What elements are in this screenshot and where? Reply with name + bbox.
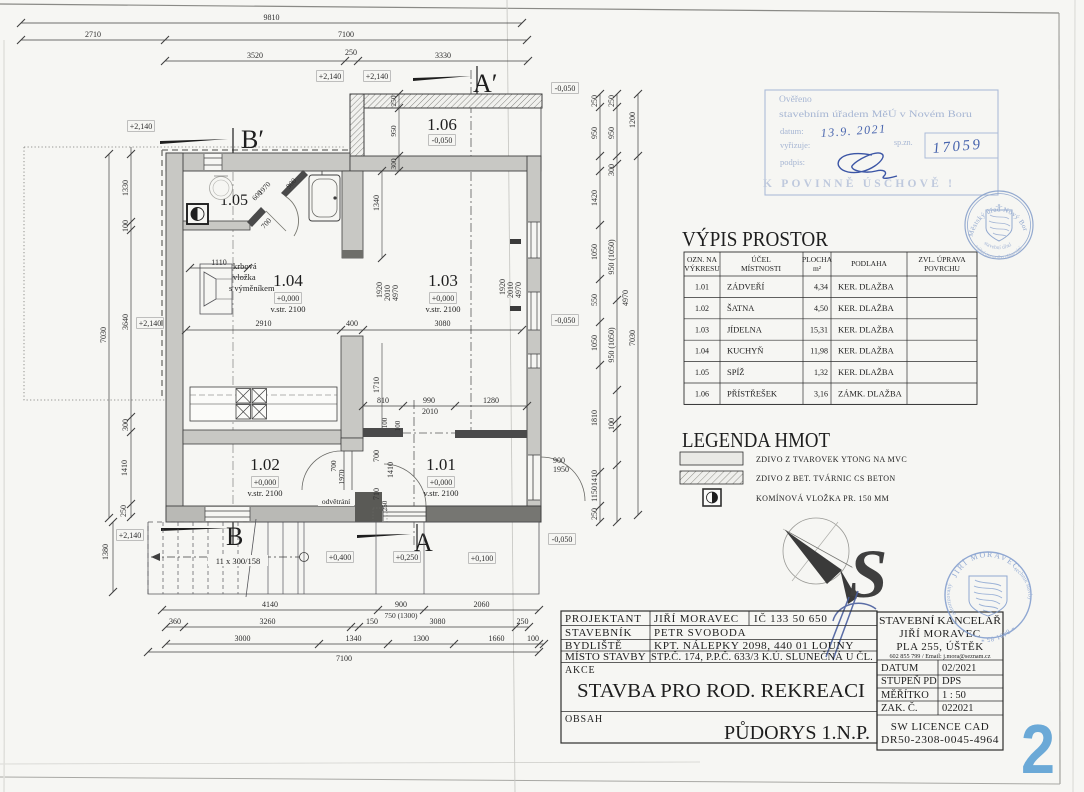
- svg-text:1300: 1300: [413, 634, 429, 643]
- svg-text:4,34: 4,34: [814, 283, 828, 292]
- svg-text:PLA 255, ÚŠTĚK: PLA 255, ÚŠTĚK: [896, 641, 983, 653]
- svg-text:750 (1300): 750 (1300): [384, 611, 418, 620]
- svg-text:1280: 1280: [483, 396, 499, 405]
- svg-text:POVRCHU: POVRCHU: [924, 264, 960, 273]
- svg-text:950 (1050): 950 (1050): [607, 239, 616, 275]
- svg-text:3080: 3080: [435, 319, 451, 328]
- svg-text:3260: 3260: [260, 617, 276, 626]
- svg-text:3000: 3000: [235, 634, 251, 643]
- svg-text:1050: 1050: [590, 244, 599, 260]
- svg-text:STP.Č. 174, P.P.Č. 633/3 K.Ú.: STP.Č. 174, P.P.Č. 633/3 K.Ú. SLUNEČNÁ U…: [651, 651, 873, 663]
- svg-text:KER. DLAŽBA: KER. DLAŽBA: [838, 346, 895, 356]
- svg-text:1.04: 1.04: [695, 347, 709, 356]
- svg-text:MÍSTO STAVBY: MÍSTO STAVBY: [565, 651, 646, 663]
- svg-text:KUCHYŇ: KUCHYŇ: [727, 346, 763, 356]
- svg-text:1.01: 1.01: [695, 283, 709, 292]
- svg-text:602 855 799 / Email: j.mora@se: 602 855 799 / Email: j.mora@seznam.cz: [889, 653, 990, 660]
- svg-text:KOMÍNOVÁ VLOŽKA PR. 150 MM: KOMÍNOVÁ VLOŽKA PR. 150 MM: [756, 493, 889, 503]
- svg-text:1.01: 1.01: [426, 455, 456, 474]
- svg-text:2910: 2910: [256, 319, 272, 328]
- svg-text:1050: 1050: [590, 335, 599, 351]
- svg-text:3330: 3330: [435, 51, 451, 60]
- svg-text:022021: 022021: [942, 703, 974, 714]
- svg-text:JIŘÍ MORAVEC: JIŘÍ MORAVEC: [654, 613, 739, 625]
- svg-text:+2,140: +2,140: [119, 531, 142, 540]
- svg-text:4970: 4970: [621, 290, 630, 306]
- svg-text:+0,400: +0,400: [329, 553, 352, 562]
- svg-text:15,31: 15,31: [810, 325, 828, 334]
- svg-text:PODLAHA: PODLAHA: [851, 259, 887, 268]
- svg-text:1.05: 1.05: [695, 368, 709, 377]
- svg-text:100: 100: [121, 220, 130, 232]
- svg-text:LEGENDA HMOT: LEGENDA HMOT: [682, 428, 830, 452]
- svg-text:PETR SVOBODA: PETR SVOBODA: [654, 627, 746, 639]
- svg-text:ÚČEL: ÚČEL: [751, 254, 771, 264]
- svg-text:1 : 50: 1 : 50: [942, 690, 966, 701]
- svg-text:4970: 4970: [391, 285, 400, 301]
- svg-text:+2,140: +2,140: [366, 72, 389, 81]
- svg-text:1.03: 1.03: [428, 271, 458, 290]
- svg-text:v.str. 2100: v.str. 2100: [247, 488, 282, 498]
- svg-text:950: 950: [389, 125, 398, 137]
- svg-text:OZN. NA: OZN. NA: [687, 255, 718, 264]
- svg-text:s výměníkem: s výměníkem: [229, 283, 275, 293]
- svg-text:100: 100: [394, 420, 402, 431]
- svg-text:v.str. 2100: v.str. 2100: [425, 304, 460, 314]
- svg-text:B′: B′: [241, 125, 264, 154]
- svg-text:1.02: 1.02: [695, 304, 709, 313]
- svg-text:3520: 3520: [247, 51, 263, 60]
- svg-text:PLOCHA: PLOCHA: [802, 255, 833, 264]
- svg-text:VÝKRESU: VÝKRESU: [684, 263, 720, 273]
- svg-text:B: B: [226, 522, 243, 551]
- svg-text:1.02: 1.02: [250, 455, 280, 474]
- svg-text:250: 250: [345, 48, 357, 57]
- svg-text:100: 100: [527, 634, 539, 643]
- svg-text:K POVINNĚ ÚSCHOVĚ !: K POVINNĚ ÚSCHOVĚ !: [763, 176, 955, 190]
- svg-text:810: 810: [377, 396, 389, 405]
- svg-text:950 (1050): 950 (1050): [607, 327, 616, 363]
- svg-text:1380: 1380: [101, 544, 110, 560]
- svg-text:1330: 1330: [121, 180, 130, 196]
- svg-text:ŠATNA: ŠATNA: [727, 303, 755, 313]
- svg-text:+0,000: +0,000: [254, 478, 277, 487]
- svg-text:ZÁMK. DLAŽBA: ZÁMK. DLAŽBA: [838, 389, 903, 399]
- svg-text:250: 250: [607, 95, 616, 107]
- svg-text:1340: 1340: [346, 634, 362, 643]
- svg-text:m²: m²: [813, 264, 822, 273]
- svg-text:v.str. 2100: v.str. 2100: [423, 488, 458, 498]
- svg-text:1200: 1200: [628, 112, 637, 128]
- svg-text:1710: 1710: [372, 377, 381, 393]
- svg-text:ZDIVO Z BET. TVÁRNIC CS BETON: ZDIVO Z BET. TVÁRNIC CS BETON: [756, 473, 896, 483]
- svg-text:4,50: 4,50: [814, 304, 828, 313]
- svg-text:MÍSTNOSTI: MÍSTNOSTI: [741, 263, 782, 273]
- svg-text:MĚŘÍTKO: MĚŘÍTKO: [881, 689, 929, 701]
- svg-text:2710: 2710: [85, 30, 101, 39]
- svg-text:KER. DLAŽBA: KER. DLAŽBA: [838, 282, 895, 292]
- svg-text:700: 700: [372, 450, 381, 462]
- svg-text:3640: 3640: [121, 314, 130, 330]
- svg-text:1340: 1340: [372, 195, 381, 211]
- svg-text:+0,000: +0,000: [430, 478, 453, 487]
- svg-text:-0,050: -0,050: [555, 316, 576, 325]
- svg-text:1410: 1410: [590, 470, 599, 486]
- svg-text:SPÍŽ: SPÍŽ: [727, 367, 744, 377]
- svg-text:1950: 1950: [553, 465, 569, 474]
- svg-text:2: 2: [1021, 710, 1055, 788]
- svg-text:360: 360: [169, 617, 181, 626]
- svg-text:710: 710: [372, 488, 381, 500]
- svg-text:1.06: 1.06: [427, 115, 457, 134]
- svg-text:990: 990: [423, 396, 435, 405]
- svg-text:300: 300: [121, 419, 130, 431]
- svg-text:odvětrání: odvětrání: [322, 497, 350, 506]
- svg-text:900: 900: [395, 600, 407, 609]
- svg-text:STAVEBNÍ KANCELÁŘ: STAVEBNÍ KANCELÁŘ: [879, 615, 1002, 627]
- svg-text:2060: 2060: [474, 600, 490, 609]
- svg-text:ZVL. ÚPRAVA: ZVL. ÚPRAVA: [918, 254, 966, 264]
- svg-text:ZÁDVEŘÍ: ZÁDVEŘÍ: [727, 282, 764, 292]
- svg-text:AKCE: AKCE: [565, 665, 595, 676]
- svg-text:100: 100: [607, 418, 616, 430]
- svg-text:400: 400: [346, 319, 358, 328]
- svg-text:KER. DLAŽBA: KER. DLAŽBA: [838, 367, 895, 377]
- svg-text:STAVBA PRO ROD. REKREACI: STAVBA PRO ROD. REKREACI: [577, 680, 865, 702]
- svg-text:-0,050: -0,050: [552, 535, 573, 544]
- svg-text:ZAK. Č.: ZAK. Č.: [881, 702, 917, 714]
- svg-text:7100: 7100: [336, 654, 352, 663]
- svg-text:vyřizuje:: vyřizuje:: [780, 140, 810, 150]
- svg-text:550: 550: [590, 294, 599, 306]
- svg-text:1.03: 1.03: [695, 325, 709, 334]
- svg-text:7100: 7100: [338, 30, 354, 39]
- svg-text:1.06: 1.06: [695, 390, 709, 399]
- svg-text:250: 250: [381, 500, 389, 511]
- svg-text:4140: 4140: [262, 600, 278, 609]
- svg-text:900: 900: [553, 456, 565, 465]
- svg-text:250: 250: [590, 95, 599, 107]
- svg-text:1,32: 1,32: [814, 368, 828, 377]
- svg-text:JÍDELNA: JÍDELNA: [727, 324, 763, 334]
- svg-text:PROJEKTANT: PROJEKTANT: [565, 613, 642, 625]
- svg-text:1970: 1970: [337, 469, 346, 484]
- svg-text:VÝPIS PROSTOR: VÝPIS PROSTOR: [682, 227, 828, 251]
- svg-text:PŮDORYS 1.N.P.: PŮDORYS 1.N.P.: [724, 720, 870, 744]
- svg-text:datum:: datum:: [780, 126, 804, 136]
- svg-text:STUPEŇ PD: STUPEŇ PD: [881, 675, 937, 687]
- svg-text:9810: 9810: [264, 13, 280, 22]
- svg-text:1150: 1150: [590, 486, 599, 502]
- svg-text:1810: 1810: [590, 410, 599, 426]
- svg-text:1110: 1110: [211, 258, 226, 267]
- svg-text:-8-: -8-: [996, 204, 1003, 210]
- svg-text:1420: 1420: [590, 190, 599, 206]
- svg-text:stavebním úřadem MěÚ v Novém B: stavebním úřadem MěÚ v Novém Boru: [779, 108, 972, 120]
- svg-text:300: 300: [389, 158, 398, 170]
- svg-text:02/2021: 02/2021: [942, 663, 976, 674]
- svg-text:v.str. 2100: v.str. 2100: [270, 304, 305, 314]
- svg-text:podpis:: podpis:: [780, 157, 805, 167]
- svg-text:950: 950: [590, 127, 599, 139]
- svg-text:1410: 1410: [386, 462, 395, 478]
- svg-text:250: 250: [590, 508, 599, 520]
- svg-text:PŘÍSTŘEŠEK: PŘÍSTŘEŠEK: [727, 389, 778, 399]
- svg-text:100: 100: [381, 417, 389, 428]
- svg-text:1410: 1410: [120, 460, 129, 476]
- svg-text:150: 150: [366, 617, 378, 626]
- svg-text:3,16: 3,16: [814, 390, 828, 399]
- svg-text:2010: 2010: [422, 407, 438, 416]
- svg-text:11 x 300/158: 11 x 300/158: [216, 556, 261, 566]
- svg-text:11,98: 11,98: [810, 347, 828, 356]
- svg-text:+0,100: +0,100: [471, 554, 494, 563]
- svg-text:-0,050: -0,050: [432, 136, 453, 145]
- svg-text:OBSAH: OBSAH: [565, 714, 603, 725]
- svg-text:1.04: 1.04: [273, 271, 303, 290]
- svg-text:-0,050: -0,050: [555, 84, 576, 93]
- svg-text:+2,140: +2,140: [130, 122, 153, 131]
- svg-text:1660: 1660: [489, 634, 505, 643]
- svg-text:7030: 7030: [628, 330, 637, 346]
- svg-text:SW LICENCE CAD: SW LICENCE CAD: [891, 721, 989, 733]
- svg-text:4970: 4970: [514, 282, 523, 298]
- svg-text:300: 300: [607, 164, 616, 176]
- svg-text:7030: 7030: [99, 327, 108, 343]
- svg-text:3080: 3080: [430, 617, 446, 626]
- svg-text:KER. DLAŽBA: KER. DLAŽBA: [838, 303, 895, 313]
- svg-text:STAVEBNÍK: STAVEBNÍK: [565, 627, 632, 639]
- svg-text:+2,140: +2,140: [139, 319, 162, 328]
- svg-text:ZDIVO Z TVAROVEK YTONG NA M: ZDIVO Z TVAROVEK YTONG NA MVC: [756, 455, 907, 464]
- svg-text:+0,000: +0,000: [277, 294, 300, 303]
- svg-text:+2,140: +2,140: [319, 72, 342, 81]
- svg-text:krbová: krbová: [233, 261, 257, 271]
- svg-text:+0,250: +0,250: [396, 553, 419, 562]
- svg-text:+0,000: +0,000: [432, 294, 455, 303]
- svg-text:250: 250: [389, 95, 398, 107]
- svg-text:KER. DLAŽBA: KER. DLAŽBA: [838, 324, 895, 334]
- svg-text:IČ 133 50 650: IČ 133 50 650: [754, 613, 828, 625]
- svg-text:250: 250: [119, 505, 128, 517]
- svg-text:DPS: DPS: [942, 676, 961, 687]
- svg-text:950: 950: [607, 127, 616, 139]
- svg-text:DATUM: DATUM: [881, 663, 919, 674]
- svg-text:Ověřeno: Ověřeno: [779, 95, 812, 105]
- svg-text:sp.zn.: sp.zn.: [894, 138, 913, 147]
- svg-text:DR50-2308-0045-4964: DR50-2308-0045-4964: [881, 734, 999, 746]
